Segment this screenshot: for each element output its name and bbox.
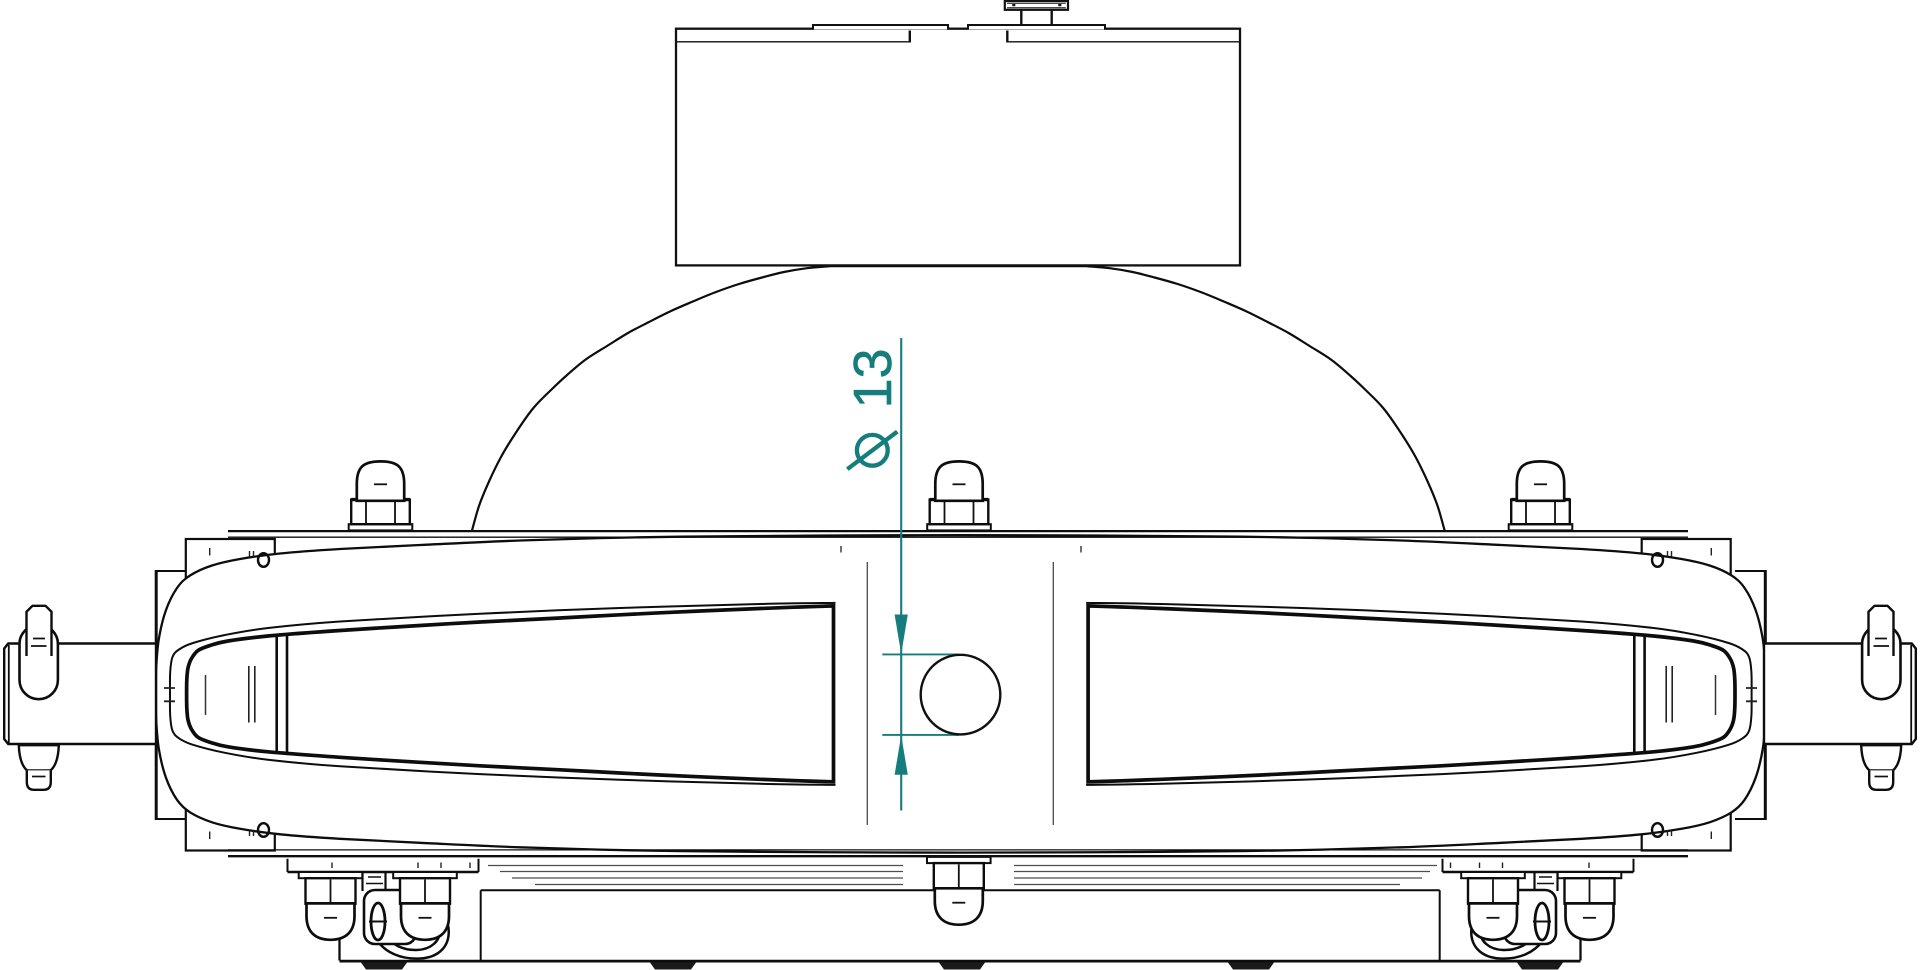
svg-text:13: 13 (843, 348, 903, 408)
